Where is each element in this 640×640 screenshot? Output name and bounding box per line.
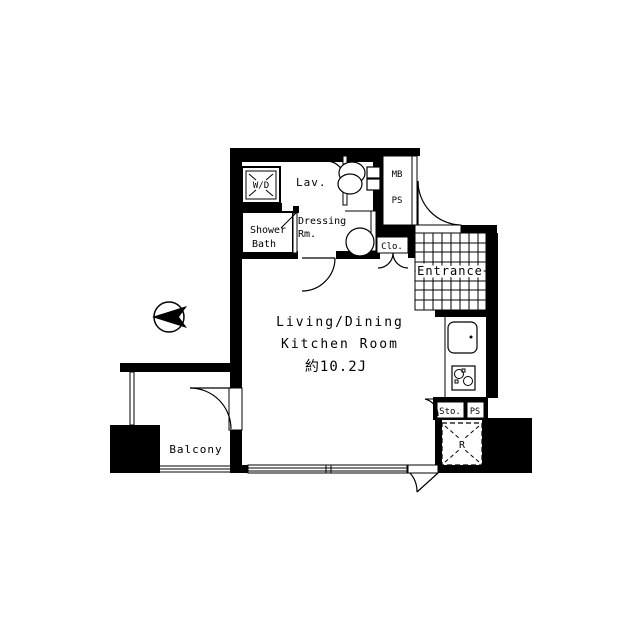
shaft-right-wall — [412, 156, 417, 225]
ps-bottom-label: PS — [470, 407, 480, 417]
refrigerator-space: R — [442, 423, 482, 465]
sto-label: Sto. — [439, 407, 461, 417]
closet-door-arc-right — [393, 253, 408, 268]
balcony-door-arc — [190, 388, 231, 429]
kitchen — [445, 317, 477, 397]
wash-basin — [346, 228, 374, 256]
kitchen-sink — [448, 322, 477, 353]
service-door-arc — [410, 473, 417, 492]
floorplan-page: MB PS Entrance Clo. — [0, 0, 640, 640]
balcony-label: Balcony — [169, 443, 222, 456]
entrance-door-arc — [418, 181, 460, 225]
balcony-area: Balcony — [158, 388, 242, 472]
entrance-threshold — [415, 225, 461, 233]
sliding-window — [248, 465, 407, 473]
closet-door-arc-left — [378, 253, 393, 268]
lav-label: Lav. — [296, 176, 327, 189]
faucet-dot — [470, 336, 473, 339]
ldk-room: Living/Dining Kitchen Room 約10.2J — [276, 315, 404, 375]
lavatory-dressing-room: Lav. Dressing Rm. — [296, 161, 380, 291]
dressing-door-arc — [302, 258, 335, 291]
toilet — [338, 162, 380, 194]
dressing-label: Dressing — [298, 216, 346, 227]
closet-label: Clo. — [381, 242, 403, 252]
bath-label: Bath — [252, 239, 276, 250]
ldk-size-label: 約10.2J — [305, 359, 367, 375]
ldk-label-line1: Living/Dining — [276, 315, 404, 330]
ps-top-label: PS — [392, 196, 403, 206]
entrance-area: Entrance — [415, 181, 486, 310]
balcony-divider — [130, 372, 134, 425]
ldk-label-line2: Kitchen Room — [281, 337, 399, 352]
shower-bath-room: Shower Bath — [242, 212, 297, 253]
service-door-threshold — [408, 465, 438, 473]
balcony-railing — [158, 466, 232, 472]
shower-label: Shower — [250, 225, 286, 236]
meter-box-pipe-shaft: MB PS — [383, 156, 412, 225]
mb-label: MB — [392, 170, 403, 180]
closet: Clo. — [377, 237, 408, 268]
dressing-rm-label: Rm. — [298, 229, 316, 240]
floorplan-svg: MB PS Entrance Clo. — [0, 0, 640, 640]
compass-icon — [152, 302, 187, 332]
fridge-label: R — [459, 440, 466, 451]
entrance-label: Entrance — [417, 264, 483, 278]
wd-label: W/D — [253, 181, 269, 191]
bottom-openings — [248, 465, 438, 492]
washer-dryer-unit: W/D — [242, 167, 280, 203]
service-door-leaf — [417, 473, 438, 492]
